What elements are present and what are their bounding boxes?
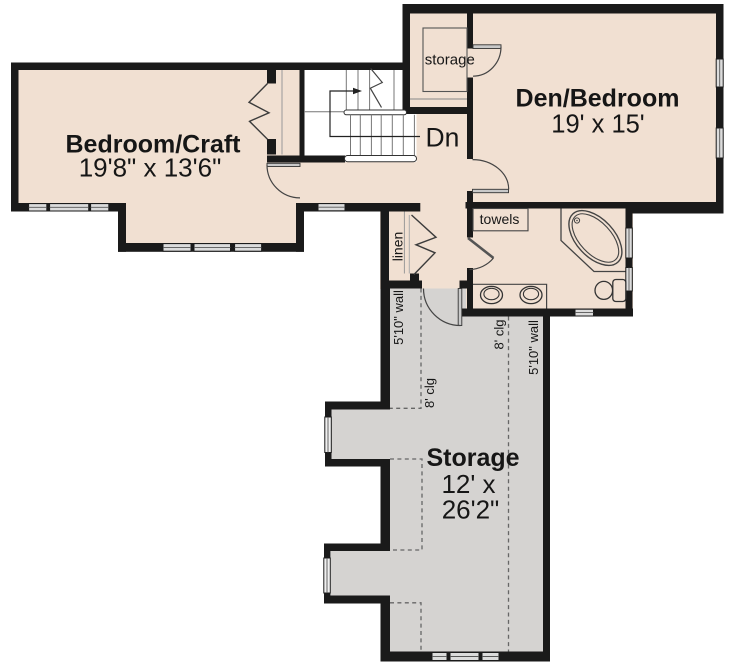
svg-text:26'2": 26'2" — [442, 495, 500, 525]
svg-text:Storage: Storage — [426, 444, 519, 472]
svg-text:5'10" wall: 5'10" wall — [526, 320, 541, 375]
svg-text:Den/Bedroom: Den/Bedroom — [516, 84, 680, 112]
svg-text:storage: storage — [425, 52, 475, 69]
svg-text:Dn: Dn — [425, 123, 459, 153]
svg-text:19' x 15': 19' x 15' — [551, 110, 644, 138]
svg-text:towels: towels — [480, 211, 520, 227]
svg-text:5'10" wall: 5'10" wall — [391, 290, 406, 345]
svg-text:19'8" x 13'6": 19'8" x 13'6" — [79, 152, 222, 182]
svg-text:8' clg: 8' clg — [491, 320, 506, 350]
svg-text:linen: linen — [390, 232, 406, 262]
svg-text:8' clg: 8' clg — [422, 378, 437, 408]
